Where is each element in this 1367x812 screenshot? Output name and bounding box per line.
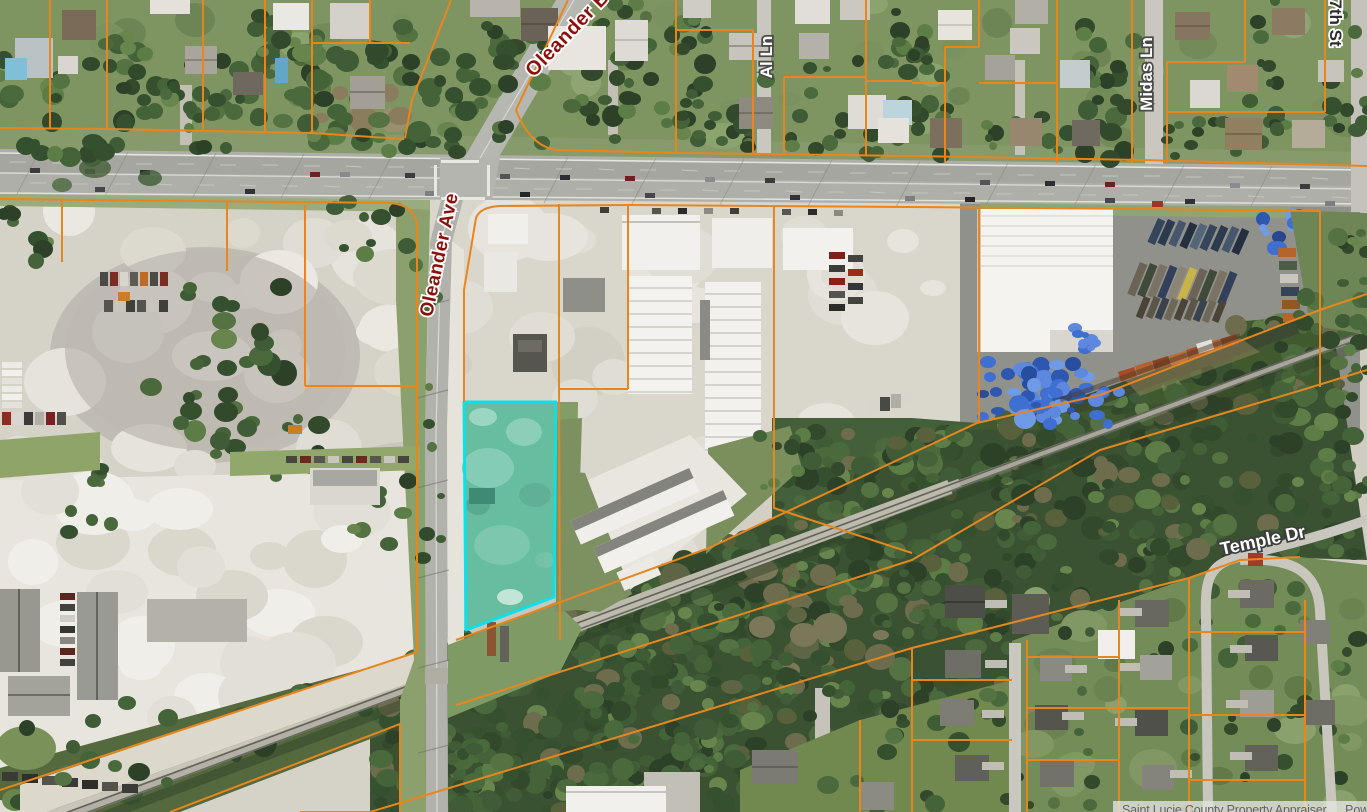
svg-text:7th St: 7th St xyxy=(1326,0,1345,47)
svg-text:Power: Power xyxy=(1345,803,1367,812)
svg-text:Al Ln: Al Ln xyxy=(757,36,776,79)
svg-text:Midas Ln: Midas Ln xyxy=(1137,37,1156,111)
svg-text:Saint Lucie County Property Ap: Saint Lucie County Property Appraiser xyxy=(1122,803,1327,812)
